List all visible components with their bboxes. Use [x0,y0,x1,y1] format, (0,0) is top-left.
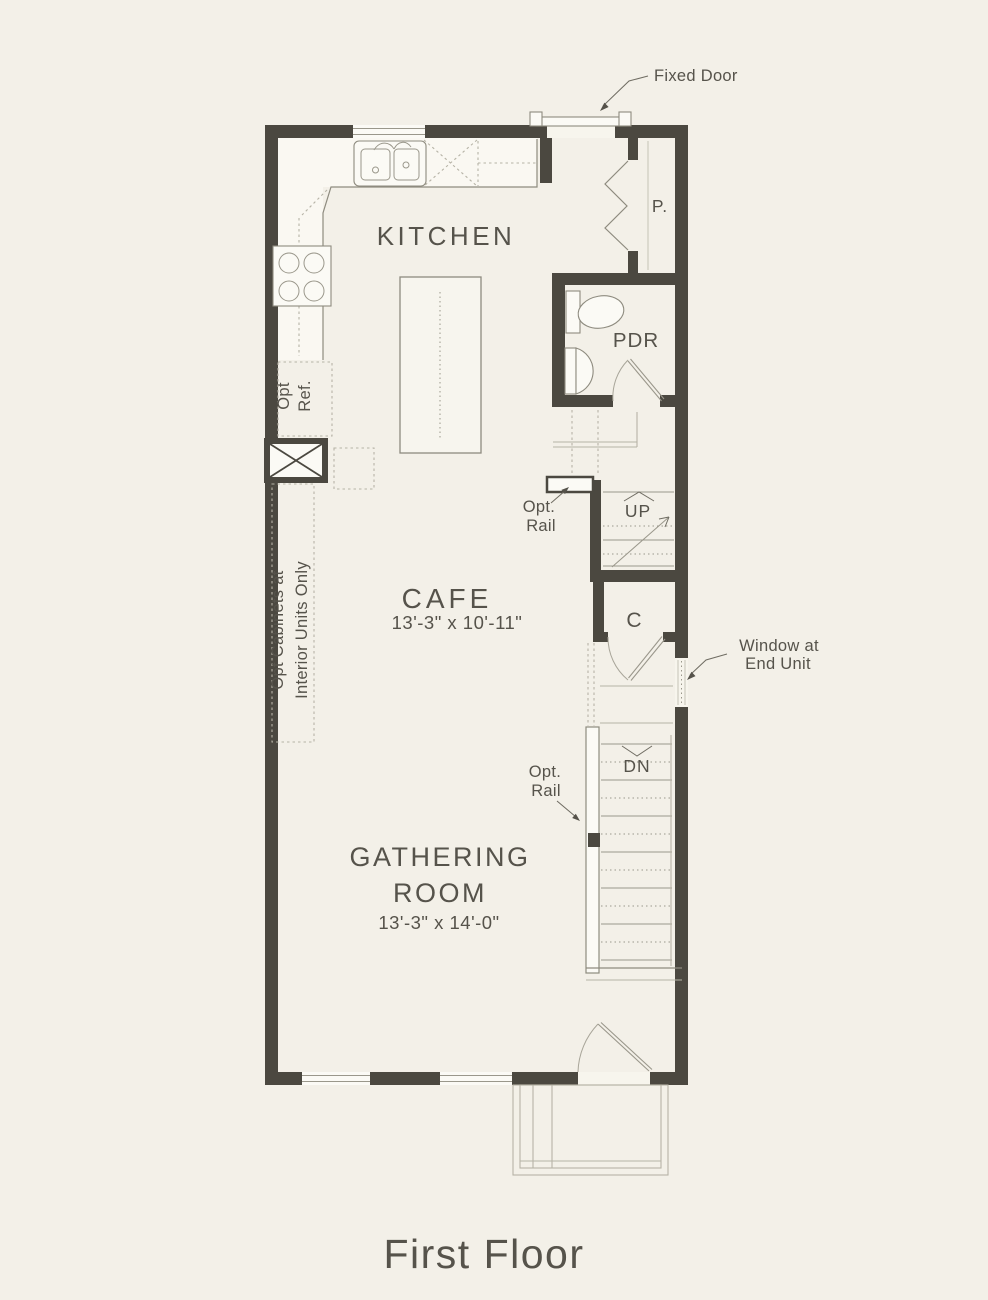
window-glass [440,1072,512,1085]
wall-bottom-b [370,1072,440,1085]
cafe-label: CAFE [402,583,493,614]
opt-rail-text-line2: Rail [526,517,556,535]
optional-cabinet-square [334,448,374,489]
leader-line [557,801,576,817]
window-glass [302,1072,370,1085]
door-swing-arc [613,360,628,401]
pantry-stub-top [628,138,638,160]
kitchen-island [400,277,481,453]
kitchen-sink [354,141,426,186]
porch-inner-outline [520,1085,661,1168]
opt-rail-bar [586,727,599,973]
stairs-down-label: DN [623,756,650,776]
leader-line [603,76,648,106]
down-direction-chevron [622,746,652,756]
kitchen-window [353,125,425,138]
gathering-window-1 [302,1072,370,1085]
closet-wall-left [593,582,604,638]
window-callout-line1: Window at [739,637,819,655]
sink-bowl [576,348,593,394]
fixed-door-post-left [530,112,542,126]
fixed-door-panel [536,117,626,126]
toilet [566,291,626,333]
rail-post [588,833,600,847]
gathering-window-2 [440,1072,512,1085]
closet-door [608,637,665,681]
window-callout-line2: End Unit [745,655,811,673]
stair-landing-upper [553,410,637,476]
leader-arrowhead [600,103,609,111]
fixed-door-post-right [619,112,631,126]
opt-cabinets-callout: Opt Cabinets at Interior Units Only [269,561,311,699]
closet-stub-right [663,632,688,642]
pdr-sink [565,348,593,394]
window-end-unit-callout: Window at End Unit [687,637,819,680]
wall-bottom-c [512,1072,578,1085]
opt-cabinets-line1: Opt Cabinets at [269,570,287,689]
pdr-door [613,359,664,401]
door-leaf [601,1023,652,1070]
chase-box [267,441,325,480]
fixed-door-callout: Fixed Door [600,67,738,111]
up-direction-line [612,517,669,567]
entry-opening [578,1072,650,1085]
floor-plan: KITCHEN CAFE 13'-3" x 10'-11" GATHERING … [0,0,988,1300]
door-leaf [598,1024,649,1071]
bifold-door [605,161,628,250]
door-leaf [631,359,665,399]
opt-rail-text-line2: Rail [531,782,561,800]
opt-rail-down-callout: Opt. Rail [529,763,580,821]
fixed-door-opening [547,125,615,138]
pantry-label: P. [652,196,668,216]
wall-top-a [265,125,353,138]
opt-ref-line2: Ref. [296,380,314,411]
opt-rail-text-line1: Opt. [529,763,561,781]
door-swing-arc [578,1024,598,1072]
gathering-label-line1: GATHERING [349,842,530,872]
porch [513,1085,668,1175]
pdr-wall-left [552,273,565,407]
fixed-door-text: Fixed Door [654,67,738,85]
door-leaf [628,361,662,401]
gathering-dimensions: 13'-3" x 14'-0" [378,912,499,933]
wall-bottom-a [265,1072,302,1085]
kitchen-label: KITCHEN [377,221,516,251]
opt-ref-callout: Opt Ref. [275,380,314,411]
entry [513,1023,668,1176]
up-direction-chevron [624,492,654,501]
closet-stub-left [593,632,608,642]
window-glass [675,658,688,707]
cooktop [273,246,331,306]
closet-area [588,637,673,727]
gathering-label-line2: ROOM [393,878,487,908]
stair-wall-bottom [590,570,683,582]
pantry-area [605,141,648,270]
pdr-label: PDR [613,329,659,352]
leader-line [690,654,727,675]
leader-arrowhead [687,672,696,680]
end-unit-window [675,658,688,707]
opt-rail-up-callout: Opt. Rail [523,487,569,535]
opt-rail-text-line1: Opt. [523,498,555,516]
opt-rail-cap [547,477,593,492]
pdr-wall-bottom [552,395,613,407]
wall-bottom-d [650,1072,688,1085]
vestibule-stub-wall [540,138,552,183]
sink-base [565,348,576,394]
wall-top-b [425,125,547,138]
door-leaf [629,637,663,679]
opt-cabinets-line2: Interior Units Only [293,561,311,699]
closet-label: C [626,609,641,632]
pantry-stub-bottom [628,251,638,273]
floor-plan-page: KITCHEN CAFE 13'-3" x 10'-11" GATHERING … [0,0,988,1300]
door-swing-arc [608,637,628,680]
door-leaf [631,639,665,681]
wall-right-b [675,707,688,1085]
toilet-bowl [576,292,627,332]
stairs-up-label: UP [625,501,651,521]
stair-wall-left [590,480,601,582]
pdr-wall-top [552,273,688,285]
cafe-dimensions: 13'-3" x 10'-11" [392,612,523,633]
opt-ref-line1: Opt [275,382,293,410]
window-glass [353,125,425,138]
plan-title: First Floor [384,1231,585,1277]
